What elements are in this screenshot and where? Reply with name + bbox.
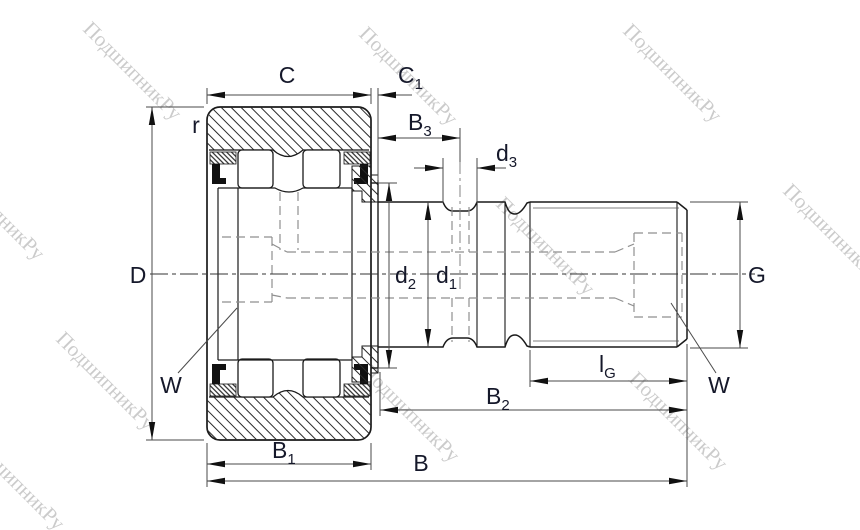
dim-B3: [378, 135, 460, 141]
label-d1: d1: [436, 262, 457, 293]
label-B3: B3: [408, 109, 432, 140]
watermark-text: ПодшипникРу: [618, 19, 727, 128]
watermark-text: ПодшипникРу: [356, 359, 465, 468]
label-W-right: W: [708, 372, 730, 398]
dim-C: [207, 92, 371, 98]
watermark-text: ПодшипникРу: [78, 17, 187, 126]
watermark-text: ПодшипникРу: [0, 427, 70, 530]
watermark-text: ПодшипникРу: [51, 327, 160, 436]
label-W-left: W: [160, 372, 182, 398]
label-d3: d3: [496, 140, 517, 171]
bearing-drawing-svg: ПодшипникРу ПодшипникРу ПодшипникРу Подш…: [0, 0, 860, 530]
label-r: r: [192, 112, 200, 138]
label-B1: B1: [272, 437, 296, 468]
label-B: B: [413, 450, 428, 476]
technical-drawing-page: ПодшипникРу ПодшипникРу ПодшипникРу Подш…: [0, 0, 860, 530]
label-d2: d2: [395, 262, 416, 293]
dim-d2: [386, 183, 392, 368]
dim-B: [207, 478, 687, 484]
dim-C1: [378, 92, 412, 98]
label-D: D: [130, 262, 147, 288]
watermark-text: ПодшипникРу: [778, 179, 860, 288]
label-lG: lG: [599, 351, 616, 382]
watermark-text: ПодшипникРу: [0, 157, 50, 266]
dim-G: [737, 202, 743, 348]
label-C: C: [279, 62, 296, 88]
label-G: G: [748, 262, 766, 288]
label-B2: B2: [486, 383, 510, 414]
